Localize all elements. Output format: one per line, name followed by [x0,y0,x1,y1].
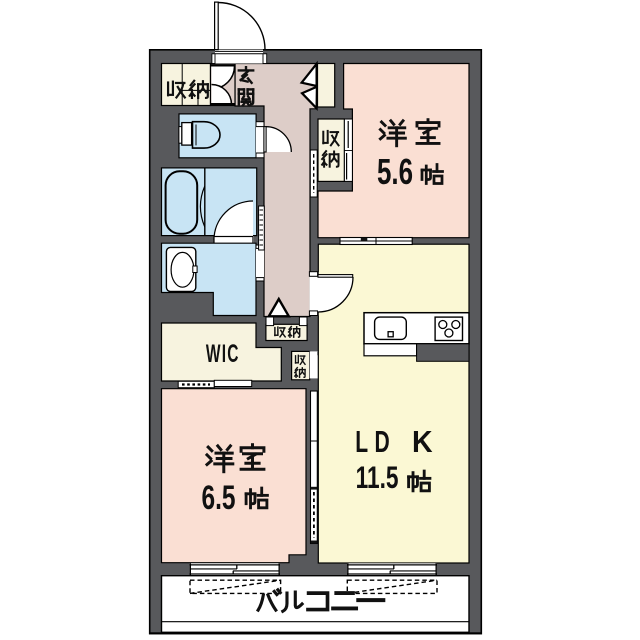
svg-text:K: K [412,425,433,459]
svg-text:WIC: WIC [206,340,240,368]
svg-text:D: D [374,424,389,459]
svg-text:6.5: 6.5 [202,479,236,517]
svg-text:L: L [355,424,368,459]
svg-text:5.6: 5.6 [377,152,413,192]
svg-text:11.5: 11.5 [356,459,399,495]
